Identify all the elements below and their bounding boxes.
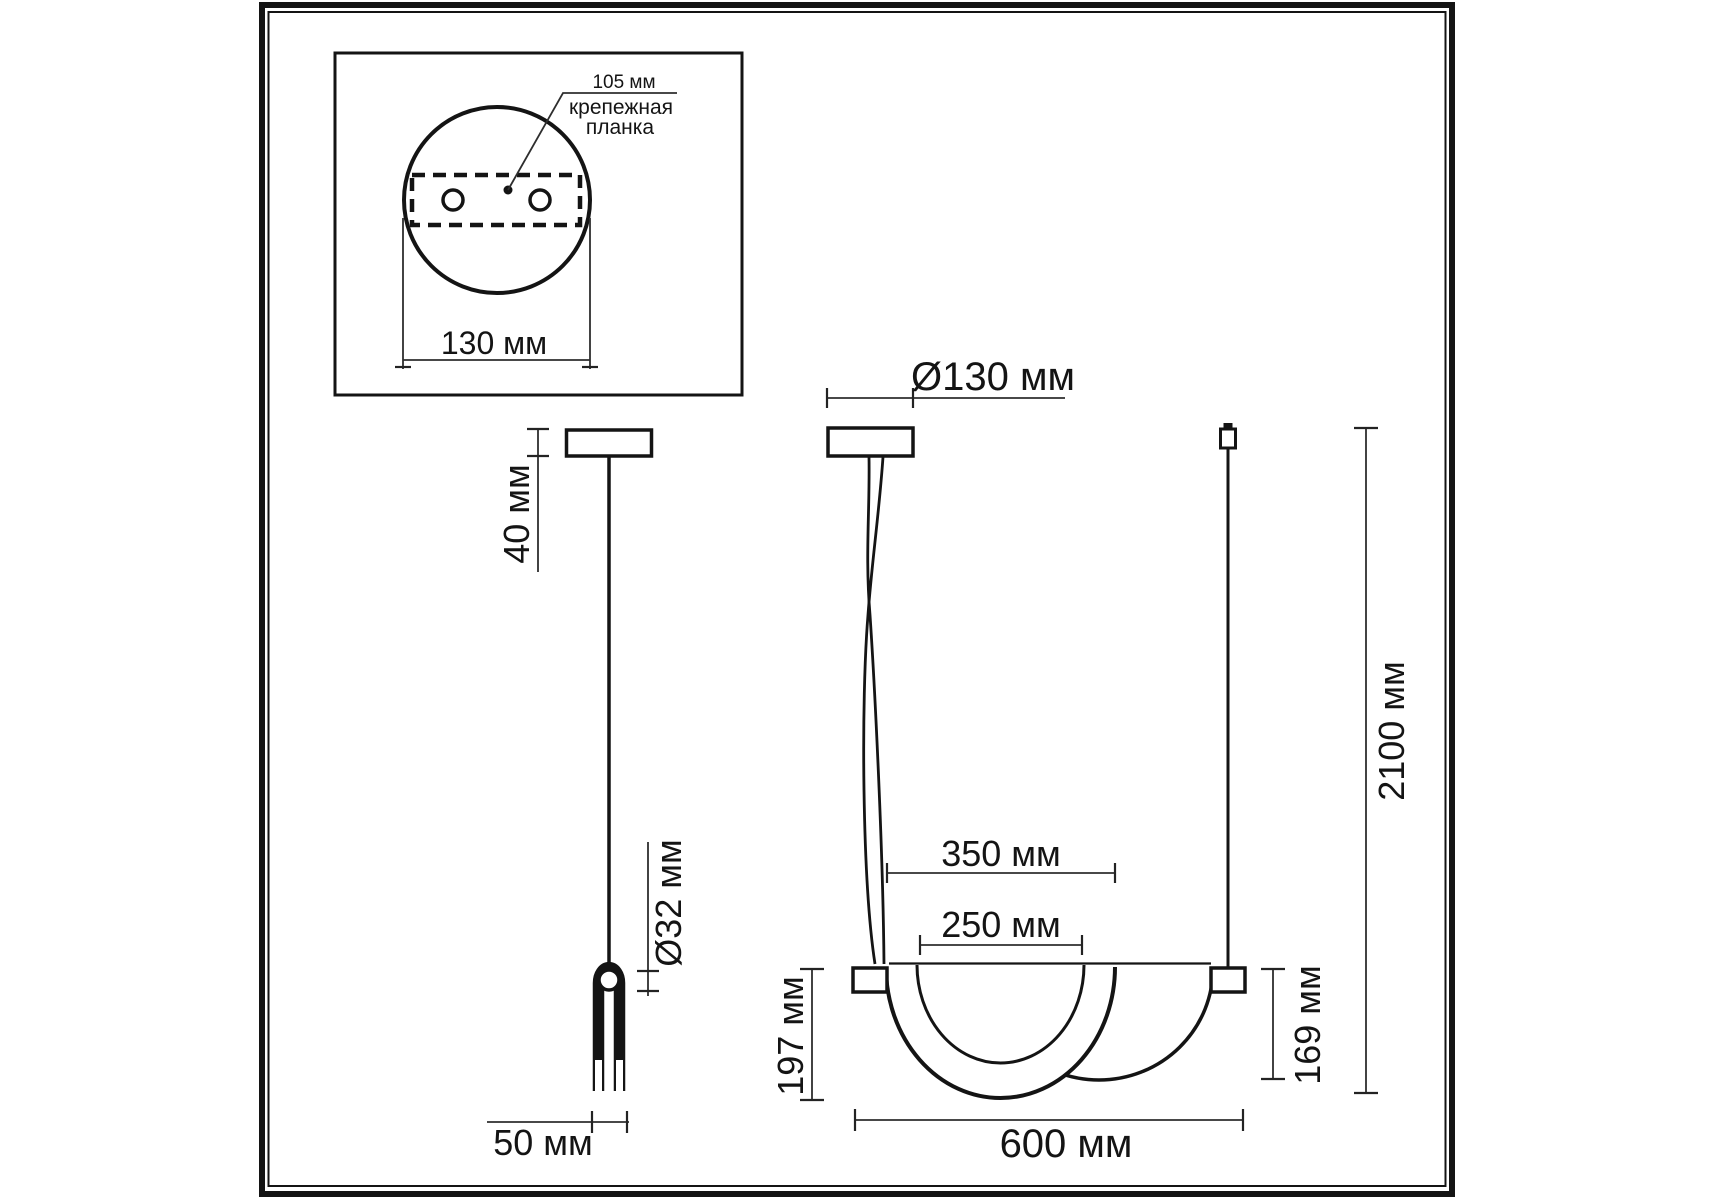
side-view: 40 мм Ø32 мм 50 мм bbox=[487, 429, 689, 1163]
dim-front-shade-height-197: 197 мм bbox=[770, 969, 824, 1100]
tube-diameter-label: Ø32 мм bbox=[648, 839, 689, 967]
canopy-width-label: 130 мм bbox=[441, 325, 547, 361]
dim-rear-shade-height-169: 169 мм bbox=[1261, 965, 1328, 1085]
canopy-diameter-label: Ø130 мм bbox=[911, 355, 1075, 399]
screw-hole-right bbox=[530, 190, 550, 210]
outer-shade-width-label: 350 мм bbox=[941, 833, 1061, 874]
inner-shade-width-label: 250 мм bbox=[941, 904, 1061, 945]
front-view: Ø130 мм 350 мм 250 мм bbox=[770, 355, 1412, 1166]
hole-spacing-label: 105 мм bbox=[592, 72, 655, 93]
front-shade-height-label: 197 мм bbox=[770, 976, 811, 1096]
dim-canopy-diameter-130: Ø130 мм bbox=[827, 355, 1075, 408]
mounting-plate-label-line2: планка bbox=[586, 116, 655, 139]
dim-tube-diameter-32: Ø32 мм bbox=[637, 839, 689, 996]
canopy-top-view-inset: 105 мм крепежная планка 130 мм bbox=[335, 53, 742, 395]
tube-cross-section-circle bbox=[599, 970, 619, 990]
mounting-plate-dashed-outline bbox=[412, 175, 580, 225]
cable-connector bbox=[1221, 429, 1236, 448]
frame-inner-border bbox=[269, 12, 1446, 1186]
canopy-side-view bbox=[567, 430, 652, 456]
suspension-length-label: 2100 мм bbox=[1371, 661, 1412, 801]
technical-drawing-page: 105 мм крепежная планка 130 мм 40 мм bbox=[0, 0, 1715, 1200]
rear-shade-height-label: 169 мм bbox=[1287, 965, 1328, 1085]
screw-hole-left bbox=[443, 190, 463, 210]
overall-width-label: 600 мм bbox=[1000, 1122, 1133, 1166]
bar-end-cap-left bbox=[853, 968, 887, 992]
canopy-front-view bbox=[828, 428, 913, 456]
dim-overall-width-600: 600 мм bbox=[855, 1109, 1243, 1166]
dim-suspension-length-2100: 2100 мм bbox=[1354, 428, 1412, 1093]
power-cord-2 bbox=[864, 457, 883, 964]
body-depth-label: 50 мм bbox=[493, 1122, 593, 1163]
dim-body-depth-50: 50 мм bbox=[487, 1111, 629, 1163]
canopy-top-view-circle bbox=[404, 107, 590, 293]
drawing-svg: 105 мм крепежная планка 130 мм 40 мм bbox=[0, 0, 1715, 1200]
dim-inner-shade-250: 250 мм bbox=[920, 904, 1082, 955]
bar-end-cap-right bbox=[1211, 968, 1245, 992]
dim-canopy-height-40: 40 мм bbox=[496, 429, 549, 572]
canopy-height-label: 40 мм bbox=[496, 464, 537, 564]
dim-outer-shade-350: 350 мм bbox=[887, 833, 1115, 883]
